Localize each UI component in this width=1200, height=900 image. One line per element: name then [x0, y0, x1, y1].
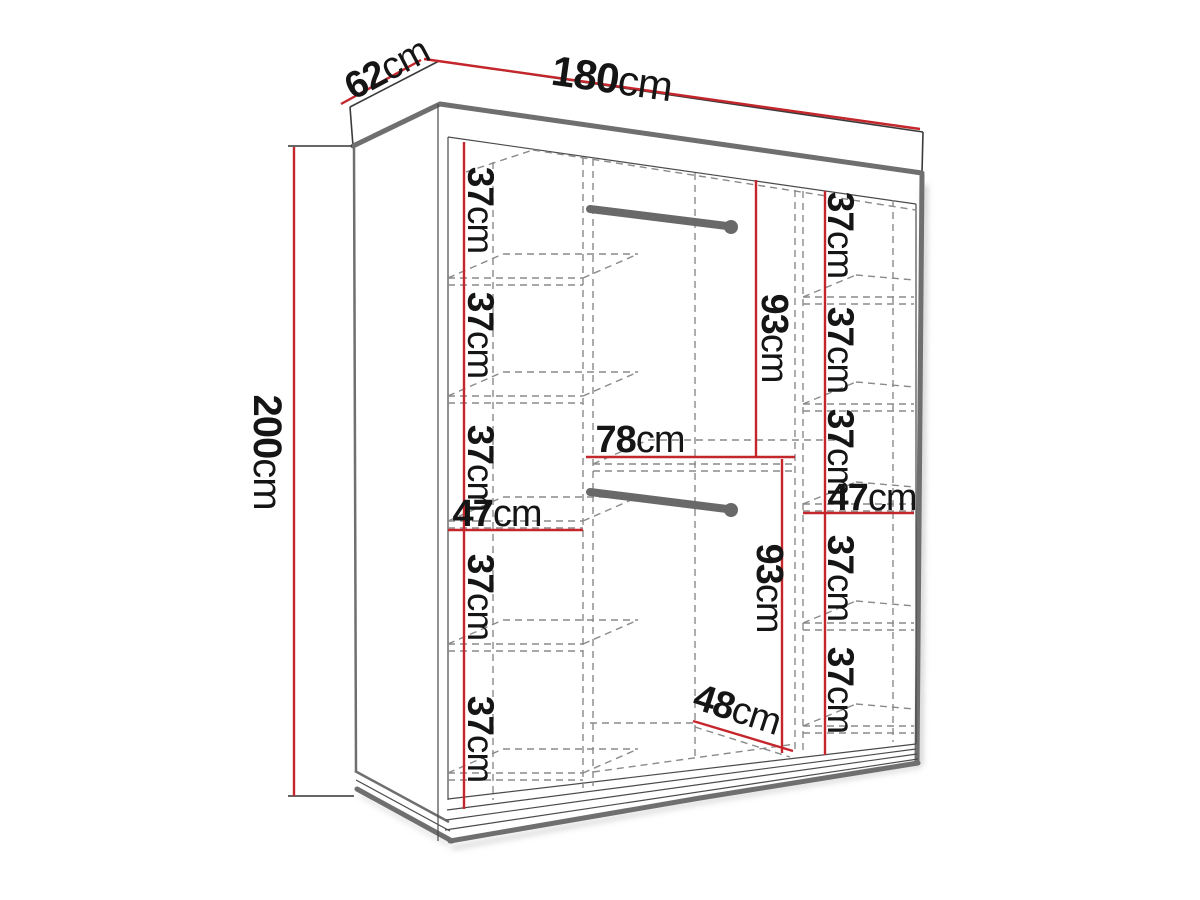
dim-label-left-section-4: 37cm	[461, 554, 502, 640]
left-shelf-1-hidden	[448, 254, 638, 285]
dim-label-right-section-1: 37cm	[821, 192, 862, 278]
shadow-bottom-left	[360, 795, 450, 845]
dim-label-lower-hanging: 93cm	[748, 544, 790, 633]
dim-label-right-section-2: 37cm	[821, 307, 862, 393]
wardrobe-dimension-diagram: 62cm 180cm 200cm 37cm 37cm 37cm 37cm 37c…	[0, 0, 1200, 900]
hanging-rod-top	[590, 209, 727, 226]
side-back-edge	[354, 147, 356, 772]
diagram-page: 62cm 180cm 200cm 37cm 37cm 37cm 37cm 37c…	[0, 0, 1200, 900]
right-shelf-1-hidden	[803, 275, 914, 304]
left-partition-hidden	[583, 158, 593, 788]
side-track-line	[356, 780, 450, 831]
hanging-rod-bottom-end	[724, 503, 738, 517]
dim-label-right-section-4: 37cm	[821, 535, 862, 621]
dim-label-depth: 62cm	[338, 30, 436, 109]
dimension-labels: 62cm 180cm 200cm 37cm 37cm 37cm 37cm 37c…	[245, 30, 916, 783]
door-track-lines	[445, 749, 918, 830]
dim-label-right-col-width: 47cm	[828, 477, 917, 519]
inner-floor-edge	[448, 744, 916, 799]
dim-label-left-section-2: 37cm	[461, 292, 502, 378]
dim-label-right-section-5: 37cm	[821, 647, 862, 733]
dim-label-left-section-5: 37cm	[461, 696, 502, 782]
top-left-step	[350, 107, 353, 146]
dim-label-middle-width: 78cm	[596, 419, 685, 461]
dim-label-width: 180cm	[549, 46, 675, 109]
dim-label-upper-hanging: 93cm	[753, 294, 795, 383]
dim-label-left-col-width: 47cm	[453, 493, 542, 535]
bottom-front-edge	[450, 763, 918, 841]
top-right-edge	[922, 132, 923, 173]
shadow-bottom	[452, 766, 920, 848]
dim-label-left-section-1: 37cm	[461, 167, 502, 253]
hanging-rod-bottom	[590, 492, 727, 509]
right-partition-hidden	[795, 190, 803, 752]
hanging-rod-top-end	[724, 220, 738, 234]
dim-label-height: 200cm	[245, 394, 289, 509]
